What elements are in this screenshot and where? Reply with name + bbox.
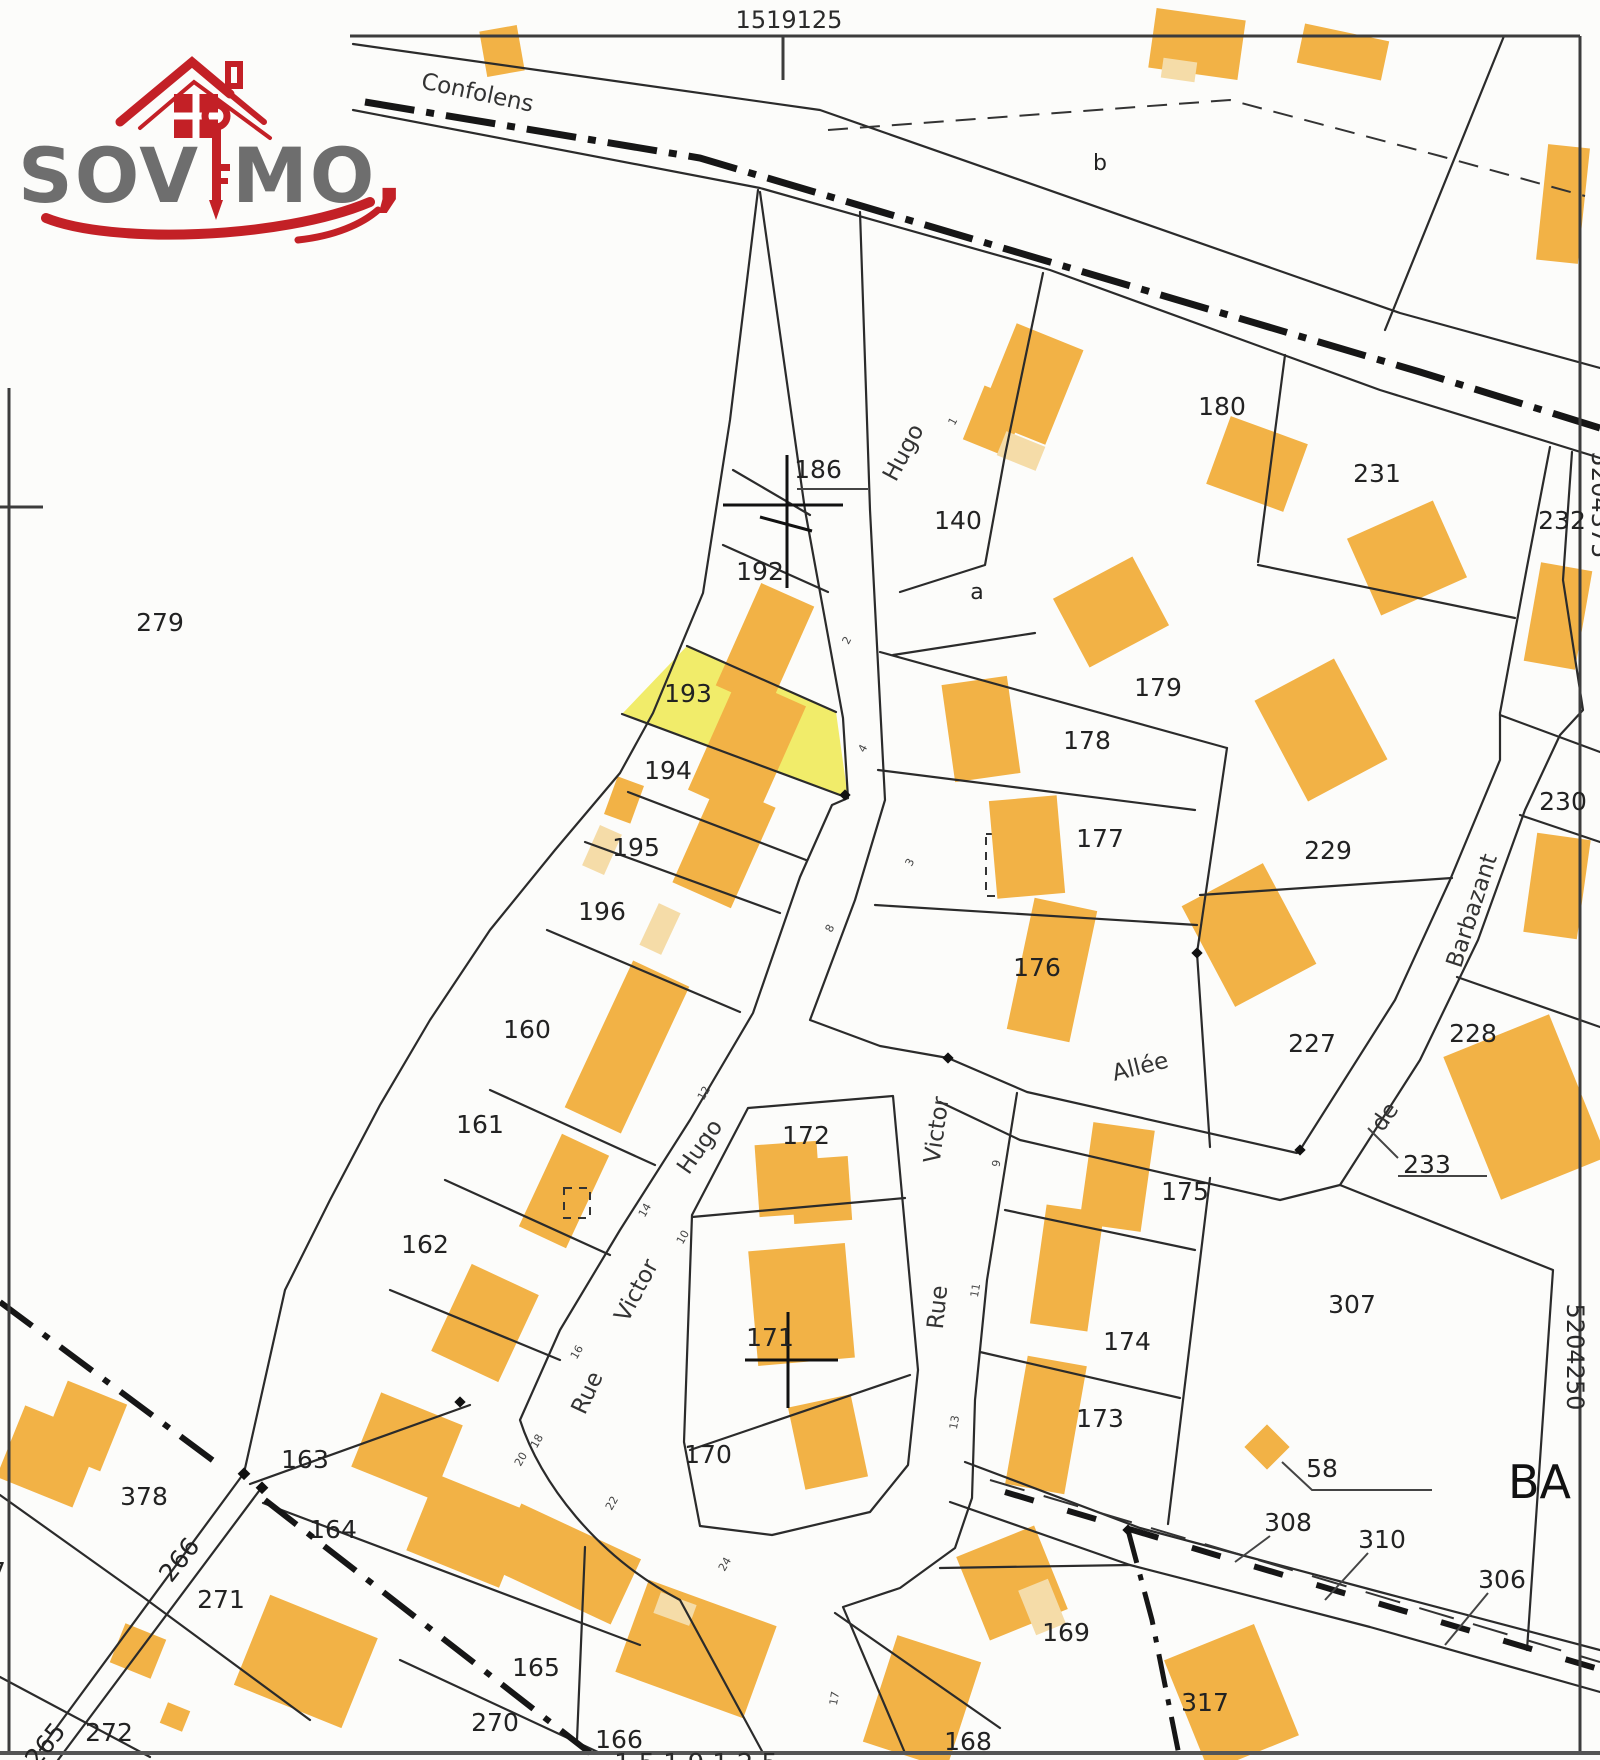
coordinate-label-right-upper: 5204375 xyxy=(1586,452,1600,559)
parcel-label-232: 232 xyxy=(1538,506,1586,535)
parcel-label-272: 272 xyxy=(85,1718,133,1747)
parcel-label-378: 378 xyxy=(120,1482,168,1511)
street-label-hugo-left: Hugo xyxy=(672,1115,728,1180)
street-label-de: de xyxy=(1366,1098,1404,1136)
building xyxy=(565,960,690,1133)
house-number: 14 xyxy=(636,1201,654,1220)
parcel-line xyxy=(520,192,848,1753)
house-number: 20 xyxy=(512,1450,530,1469)
building xyxy=(1536,144,1590,264)
parcel-label-177: 177 xyxy=(1076,824,1124,853)
building xyxy=(1255,659,1388,802)
junction-mark xyxy=(454,1396,465,1407)
parcel-label-271: 271 xyxy=(197,1585,245,1614)
parcel-line xyxy=(1168,1178,1210,1524)
parcel-label-169: 169 xyxy=(1042,1618,1090,1647)
parcel-line xyxy=(893,633,1035,655)
building xyxy=(234,1595,378,1728)
parcel-label-171: 171 xyxy=(746,1323,794,1352)
parcel-label-173: 173 xyxy=(1076,1404,1124,1433)
street-label-rue-left: Rue xyxy=(567,1368,609,1419)
parcel-label-194: 194 xyxy=(644,756,692,785)
commune-boundary xyxy=(1128,1530,1180,1760)
parcel-label-7-partial: 7 xyxy=(0,1557,6,1586)
cadastral-map: 1519125 1519125 5204375 5204250 BA Confo… xyxy=(0,0,1600,1760)
parcel-line xyxy=(1500,715,1600,752)
logo-swoosh xyxy=(40,196,385,246)
parcel-label-168: 168 xyxy=(944,1727,992,1756)
house-number: 4 xyxy=(856,742,871,754)
leader-310 xyxy=(1325,1553,1368,1600)
labels-layer: 1519125 1519125 5204375 5204250 BA Confo… xyxy=(0,6,1600,1760)
building xyxy=(615,1580,776,1719)
building xyxy=(431,1264,539,1382)
house-number: 10 xyxy=(674,1228,692,1247)
parcel-label-307: 307 xyxy=(1328,1290,1376,1319)
building xyxy=(1206,416,1308,512)
house-number: 16 xyxy=(568,1343,586,1362)
parcel-line xyxy=(0,1495,310,1720)
building xyxy=(1297,23,1389,80)
parcel-label-317: 317 xyxy=(1181,1688,1229,1717)
building xyxy=(479,25,524,77)
section-letter-b: b xyxy=(1093,151,1107,176)
parcel-label-186: 186 xyxy=(794,455,842,484)
street-label-victor-right: Victor xyxy=(920,1095,955,1165)
coordinate-label-top: 1519125 xyxy=(736,6,843,34)
building xyxy=(942,676,1021,782)
house-number: 24 xyxy=(716,1555,734,1574)
parcel-label-270: 270 xyxy=(471,1708,519,1737)
building xyxy=(1053,556,1169,667)
junction-mark xyxy=(1294,1144,1305,1155)
parcel-label-230: 230 xyxy=(1539,787,1587,816)
house-number: 1 xyxy=(946,415,961,427)
parcel-label-166: 166 xyxy=(595,1725,643,1754)
building xyxy=(989,795,1065,899)
sovimo-logo: SOVMO, xyxy=(12,38,412,228)
junction-mark xyxy=(1191,947,1202,958)
parcel-label-310: 310 xyxy=(1358,1525,1406,1554)
building xyxy=(1524,562,1593,670)
house-number: 2 xyxy=(840,634,855,646)
parcel-label-266: 266 xyxy=(153,1532,205,1587)
house-number: 13 xyxy=(947,1414,962,1430)
parcel-label-174: 174 xyxy=(1103,1327,1151,1356)
parcel-label-178: 178 xyxy=(1063,726,1111,755)
coordinate-label-right-lower: 5204250 xyxy=(1561,1304,1589,1411)
street-label-victor-left: Victor xyxy=(610,1255,665,1327)
commune-boundary xyxy=(365,102,1600,428)
parcel-label-165: 165 xyxy=(512,1653,560,1682)
building xyxy=(790,1156,852,1224)
parcel-label-228: 228 xyxy=(1449,1019,1497,1048)
parcel-line xyxy=(1385,36,1504,330)
parcel-label-176: 176 xyxy=(1013,953,1061,982)
sheet-frame xyxy=(0,36,1600,1753)
house-number: 17 xyxy=(827,1690,842,1706)
section-letter-a: a xyxy=(970,580,983,605)
boundary-layer xyxy=(0,100,1600,1760)
street-label-barbazant: Barbazant xyxy=(1442,851,1503,971)
parcel-label-195: 195 xyxy=(612,833,660,862)
parcel-label-227: 227 xyxy=(1288,1029,1336,1058)
street-label-rue-right: Rue xyxy=(923,1284,953,1330)
parcel-label-172: 172 xyxy=(782,1121,830,1150)
house-number: 9 xyxy=(990,1159,1004,1168)
parcel-label-179: 179 xyxy=(1134,673,1182,702)
building-annex xyxy=(639,903,680,955)
parcel-label-192: 192 xyxy=(736,557,784,586)
parcel-label-140: 140 xyxy=(934,506,982,535)
parcel-label-163: 163 xyxy=(281,1445,329,1474)
building xyxy=(1347,501,1467,616)
building xyxy=(110,1623,167,1678)
parcel-label-162: 162 xyxy=(401,1230,449,1259)
house-number: 11 xyxy=(968,1282,983,1298)
parcel-label-229: 229 xyxy=(1304,836,1352,865)
parcel-label-161: 161 xyxy=(456,1110,504,1139)
parcel-label-308: 308 xyxy=(1264,1508,1312,1537)
parcel-label-193: 193 xyxy=(664,679,712,708)
building xyxy=(160,1702,190,1731)
leader-58 xyxy=(1282,1462,1432,1490)
street-label-confolens: Confolens xyxy=(419,69,536,118)
parcel-label-164: 164 xyxy=(309,1515,357,1544)
parcel-label-306: 306 xyxy=(1478,1565,1526,1594)
parcel-lines-layer xyxy=(0,36,1600,1760)
junction-mark xyxy=(942,1052,953,1063)
street-label-allee: Allée xyxy=(1110,1048,1171,1087)
parcel-label-58: 58 xyxy=(1306,1454,1338,1483)
building xyxy=(1005,1356,1087,1494)
parcel-label-180: 180 xyxy=(1198,392,1246,421)
parcel-label-196: 196 xyxy=(578,897,626,926)
map-canvas: 1519125 1519125 5204375 5204250 BA Confo… xyxy=(0,0,1600,1760)
building xyxy=(1182,863,1317,1007)
sheet-label: BA xyxy=(1508,1455,1572,1509)
parcel-label-160: 160 xyxy=(503,1015,551,1044)
house-number: 22 xyxy=(603,1494,621,1513)
parcel-label-233: 233 xyxy=(1403,1150,1451,1179)
parcel-label-279: 279 xyxy=(136,608,184,637)
building xyxy=(788,1394,868,1489)
house-number: 8 xyxy=(823,922,838,934)
parcel-label-231: 231 xyxy=(1353,459,1401,488)
parcel-label-170: 170 xyxy=(684,1440,732,1469)
parcel-label-175: 175 xyxy=(1161,1177,1209,1206)
street-label-hugo-north: Hugo xyxy=(878,420,929,486)
house-number: 3 xyxy=(903,856,918,868)
road-line xyxy=(353,44,1600,368)
